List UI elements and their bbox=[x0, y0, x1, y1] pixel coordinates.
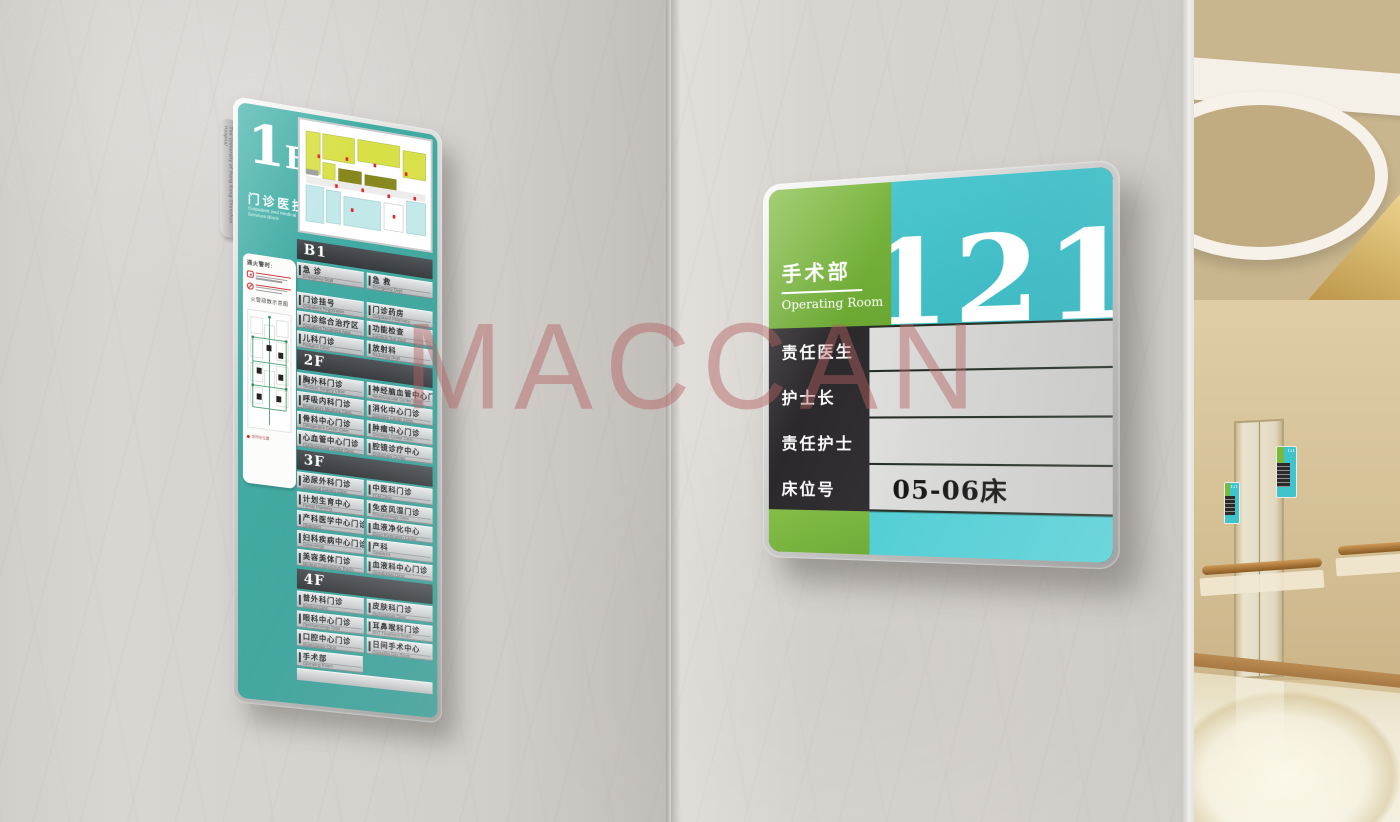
mini-sign-number: 121 bbox=[1287, 448, 1295, 453]
room-sign-footer bbox=[769, 509, 1113, 563]
field-value bbox=[869, 318, 1112, 372]
field-label: 床位号 bbox=[769, 464, 870, 511]
legend-text: 您所在位置 bbox=[252, 435, 270, 442]
hallway-photo: 121 121 bbox=[1194, 0, 1400, 822]
room-sign-face: 手术部 Operating Room 121 责任医生护士长责任护士床位号05-… bbox=[769, 167, 1113, 563]
no-elevator-icon bbox=[247, 282, 254, 290]
floor-plan-svg bbox=[300, 119, 431, 251]
evacuation-map bbox=[247, 304, 292, 438]
field-label: 护士长 bbox=[769, 372, 870, 419]
directory-listing: B1急 诊Emergency Dept急 救Emergency Dept门诊挂号… bbox=[297, 239, 433, 714]
department-underline bbox=[782, 289, 863, 294]
directory-sign: The University of Hong Kong Shenzhen Hos… bbox=[233, 96, 442, 724]
field-label: 责任医生 bbox=[769, 326, 870, 374]
department-block: 手术部 Operating Room bbox=[769, 182, 892, 329]
room-number-block: 121 bbox=[892, 167, 1113, 326]
hallway-mini-sign: 121 bbox=[1224, 482, 1240, 524]
hospital-name-text: The University of Hong Kong Shenzhen Hos… bbox=[224, 125, 234, 238]
floor-plan-map bbox=[298, 117, 433, 253]
hallway-mini-sign: 121 bbox=[1276, 446, 1297, 498]
fire-instruction-text bbox=[256, 283, 291, 296]
fire-instruction-text bbox=[256, 271, 291, 284]
directory-sign-frame: 1F 门诊医技楼 Outpatient and Medical Services… bbox=[233, 96, 442, 724]
fire-instruction-item bbox=[247, 282, 292, 296]
room-sign-header: 手术部 Operating Room 121 bbox=[769, 167, 1113, 329]
field-value bbox=[869, 368, 1112, 419]
evacuation-map-svg bbox=[247, 304, 292, 438]
fire-extinguisher-icon bbox=[247, 270, 254, 278]
field-value: 05-06床 bbox=[869, 465, 1112, 517]
marble-wall-edge bbox=[1181, 0, 1194, 822]
field-value bbox=[869, 418, 1112, 468]
marble-wall-seam bbox=[666, 0, 671, 822]
ceiling-cove-ellipse bbox=[1194, 92, 1388, 260]
department-name-en: Operating Room bbox=[782, 294, 884, 312]
floor-number: 1 bbox=[248, 110, 285, 180]
room-sign-frame: 手术部 Operating Room 121 责任医生护士长责任护士床位号05-… bbox=[763, 159, 1120, 569]
room-info-fields: 责任医生护士长责任护士床位号05-06床 bbox=[769, 318, 1113, 516]
hallway-ceiling bbox=[1194, 0, 1400, 310]
room-number: 121 bbox=[892, 225, 1113, 325]
field-label: 责任护士 bbox=[769, 419, 870, 465]
room-sign: 手术部 Operating Room 121 责任医生护士长责任护士床位号05-… bbox=[763, 159, 1120, 569]
department-name-zh: 手术部 bbox=[782, 253, 884, 287]
footer-green-block bbox=[769, 509, 870, 554]
mini-sign-number: 121 bbox=[1230, 484, 1238, 489]
fire-safety-panel: 遇火警时: 火警疏散示意图 bbox=[243, 253, 296, 490]
location-dot-icon bbox=[247, 435, 250, 438]
directory-sign-face: 1F 门诊医技楼 Outpatient and Medical Services… bbox=[238, 102, 437, 718]
footer-teal-band bbox=[869, 511, 1112, 563]
